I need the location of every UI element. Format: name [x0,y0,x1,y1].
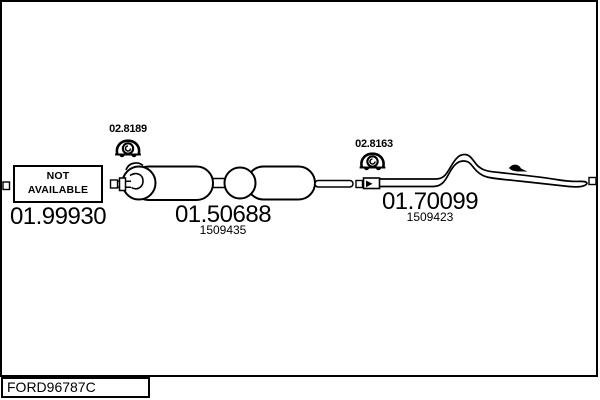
middle-silencer-drawing [111,163,380,200]
vehicle-code: FORD96787C [7,379,96,395]
tailpipe-end-square [589,178,596,185]
not-available-box: NOT AVAILABLE [13,165,103,203]
rubber-mount-icon [115,141,141,158]
weld-mark [509,165,528,172]
left-frame-connector-square [3,182,10,190]
vehicle-code-box: FORD96787C [1,377,150,398]
ref-number-tailpipe: 1509423 [378,210,482,224]
rear-tailpipe [380,155,587,187]
pipe-coupling-sleeve [364,178,380,189]
exhaust-diagram-page: NOT AVAILABLE 01.99930 02.8189 01.50688 … [0,0,600,400]
inlet-collar [120,178,126,191]
resonator-front-face [225,168,256,199]
outlet-pipe [315,181,353,188]
silencer-body-2 [247,167,315,200]
part-number-front-pipe[interactable]: 01.99930 [6,203,110,231]
part-number-mount-rear[interactable]: 02.8163 [350,138,398,150]
rubber-mount-icon [360,154,386,171]
not-available-line2: AVAILABLE [28,184,88,198]
silencer-front-face [123,167,156,200]
part-number-mount-front[interactable]: 02.8189 [104,123,152,135]
not-available-line1: NOT [47,170,70,184]
front-connector-square [111,180,118,188]
pipe-joint-square [356,181,363,188]
ref-number-silencer: 1509435 [171,223,275,237]
